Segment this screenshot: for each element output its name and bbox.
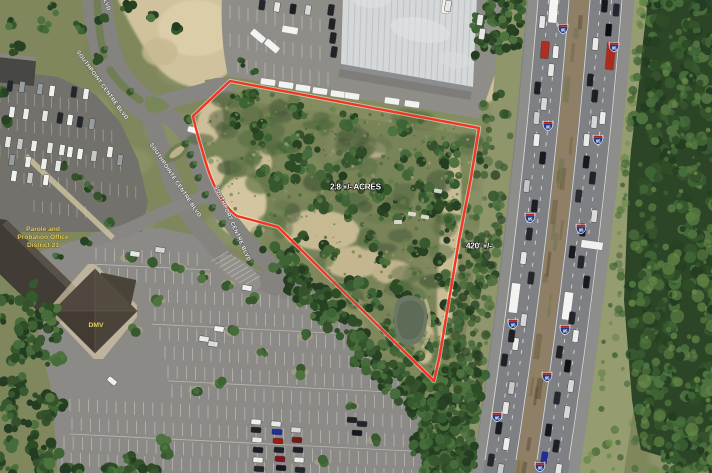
svg-text:420' +/-: 420' +/- bbox=[466, 242, 492, 251]
svg-text:2.8 +/- ACRES: 2.8 +/- ACRES bbox=[330, 183, 382, 192]
svg-text:Parole and: Parole and bbox=[26, 226, 60, 233]
svg-text:Probation Office: Probation Office bbox=[17, 234, 69, 241]
svg-text:District 21: District 21 bbox=[27, 242, 59, 249]
svg-text:DMV: DMV bbox=[88, 322, 104, 329]
